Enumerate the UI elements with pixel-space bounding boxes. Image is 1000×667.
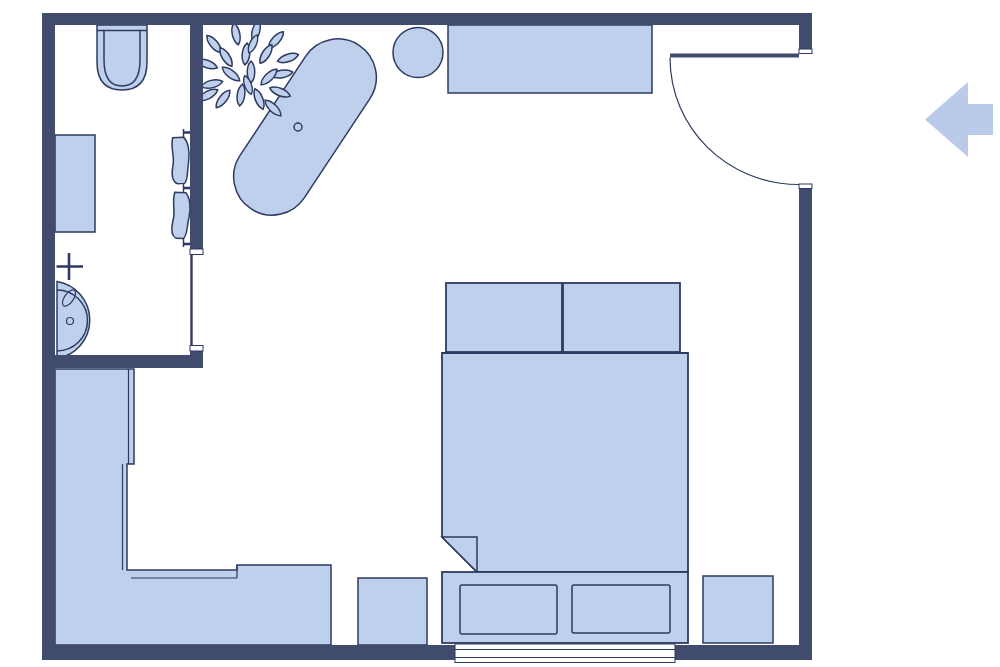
- pillow-left[interactable]: [446, 283, 562, 352]
- nightstand-left[interactable]: [358, 578, 427, 645]
- wall-left: [42, 13, 55, 660]
- towel-radiator[interactable]: [171, 129, 192, 247]
- exit-left-arrow[interactable]: [925, 82, 993, 157]
- l-shaped-wardrobe[interactable]: [55, 369, 331, 645]
- mattress[interactable]: [442, 353, 688, 572]
- faucet-icon: [57, 253, 84, 280]
- bathroom: [55, 25, 192, 359]
- pillow-right[interactable]: [563, 283, 680, 352]
- door-jamb-top: [799, 49, 812, 54]
- bathroom-door-jamb-top: [190, 249, 203, 255]
- walls: [42, 13, 812, 660]
- entry-door-swing-arc: [670, 58, 799, 185]
- vanity-shelf[interactable]: [55, 135, 95, 232]
- nightstand-right[interactable]: [703, 576, 773, 643]
- blanket-fold: [442, 537, 477, 572]
- toilet[interactable]: [97, 25, 147, 90]
- wall-bottom: [42, 645, 812, 660]
- door-jamb-bottom: [799, 184, 812, 189]
- bathroom-partition-wall: [190, 25, 203, 249]
- wall-right: [799, 188, 812, 660]
- bathroom-door[interactable]: [190, 249, 203, 351]
- towel-bottom: [171, 192, 190, 239]
- double-bed[interactable]: [442, 283, 688, 643]
- towel-top: [171, 137, 190, 184]
- sink-with-faucet[interactable]: [57, 253, 90, 359]
- floor-plan-canvas: [0, 0, 1000, 667]
- console-table[interactable]: [448, 25, 652, 93]
- window-bottom-wall: [455, 644, 675, 663]
- bedroom: [55, 19, 773, 645]
- entry-door-leaf[interactable]: [670, 54, 799, 58]
- bathroom-bottom-wall: [55, 355, 203, 368]
- entry-door[interactable]: [670, 49, 812, 189]
- floor-plan: [0, 0, 1000, 667]
- round-stool[interactable]: [393, 28, 443, 78]
- bench-drawer-right[interactable]: [572, 585, 670, 633]
- bathroom-door-jamb-bottom: [190, 346, 203, 352]
- wall-right-upper-stub: [799, 13, 812, 53]
- window-frame: [455, 644, 675, 663]
- wall-top: [42, 13, 812, 25]
- bench-drawer-left[interactable]: [460, 585, 557, 634]
